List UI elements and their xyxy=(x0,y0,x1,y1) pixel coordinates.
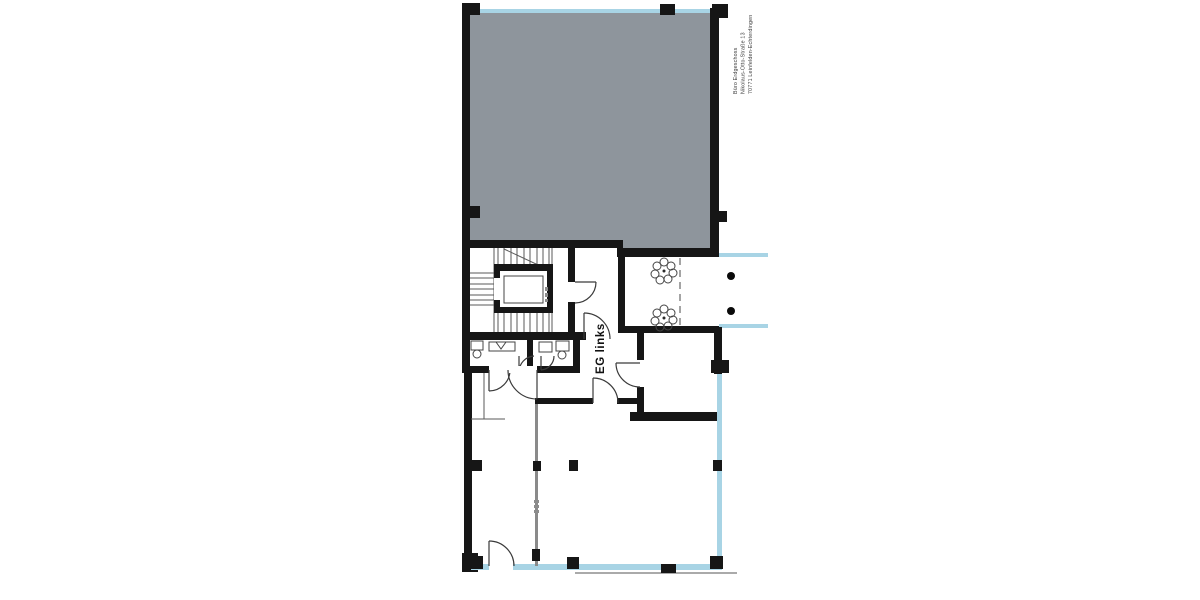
urinal-icon xyxy=(496,342,506,349)
toilet-icon xyxy=(471,341,483,350)
wall-left-upper xyxy=(462,8,470,248)
toilet-icon xyxy=(556,341,569,351)
elevator xyxy=(494,264,553,313)
column xyxy=(472,460,482,471)
wall-wc-divider xyxy=(527,340,533,366)
partition-tiny-label xyxy=(534,500,539,503)
wall-office-bottom xyxy=(630,412,722,421)
column xyxy=(661,564,676,573)
column-top-right xyxy=(712,4,728,18)
column xyxy=(713,460,722,471)
upper-unit-grey-fill xyxy=(470,13,710,248)
column-top-left xyxy=(462,3,480,15)
wall-upper-unit-bottom-left xyxy=(462,240,623,248)
column xyxy=(569,460,578,471)
glass-partition xyxy=(535,404,538,566)
door-office-right xyxy=(616,363,640,387)
wall-notch-left xyxy=(470,206,480,218)
column xyxy=(470,556,483,569)
door-hallway-left xyxy=(489,366,511,391)
floor-plan-drawing: EG links xyxy=(0,0,1200,600)
address-line-1: Büro Erdgeschoss xyxy=(733,47,739,94)
wall-right-upper xyxy=(710,8,719,257)
door-hallway-right xyxy=(508,366,537,399)
tree-icon xyxy=(651,258,677,284)
wall-upper-unit-bottom-right xyxy=(617,248,719,257)
glazing-line-top xyxy=(462,9,723,13)
freestanding-column xyxy=(727,307,735,315)
column-top-mid xyxy=(660,4,675,15)
address-text-block: Büro Erdgeschoss Nikolaus-Otto-Straße 13… xyxy=(733,15,754,94)
column-grid xyxy=(470,460,723,573)
address-line-2: Nikolaus-Otto-Straße 13 xyxy=(741,32,747,94)
open-plan-area xyxy=(462,366,737,574)
sink-icon xyxy=(539,342,552,352)
column xyxy=(533,461,541,471)
column xyxy=(532,549,540,561)
column xyxy=(710,556,723,569)
elevator-door-opening xyxy=(494,278,500,300)
wall-stairwell-right-upper xyxy=(568,248,575,282)
wall-stairwell-bottom xyxy=(462,332,575,340)
wall-courtyard-left xyxy=(618,255,625,330)
column-office-right xyxy=(711,360,729,373)
facade-offset-line xyxy=(575,572,737,574)
elevator-tiny-label xyxy=(545,287,548,291)
wall-left-lower xyxy=(464,373,472,570)
canopy-edge-upper xyxy=(719,253,768,257)
wall-corridor-stub xyxy=(568,332,586,340)
unit-label: EG links xyxy=(595,323,607,374)
upper-unit-area xyxy=(462,3,728,257)
wall-left-stairwell xyxy=(462,248,470,373)
freestanding-column xyxy=(727,272,735,280)
office-room-right xyxy=(616,327,729,421)
wall-notch-right xyxy=(719,211,727,222)
courtyard xyxy=(618,253,768,333)
column xyxy=(567,557,579,569)
canopy-edge-lower xyxy=(719,324,768,328)
door-hallway-to-open-area xyxy=(593,378,618,404)
door-stairwell-to-corridor xyxy=(568,282,596,303)
scanned-floor-plan-page: EG links xyxy=(0,0,1200,600)
address-line-3: 70771 Leinfelden-Echterdingen xyxy=(748,15,754,94)
wall-hallway-bottom xyxy=(535,398,640,404)
door-main-entrance xyxy=(489,541,514,570)
sink-icon xyxy=(489,342,515,351)
